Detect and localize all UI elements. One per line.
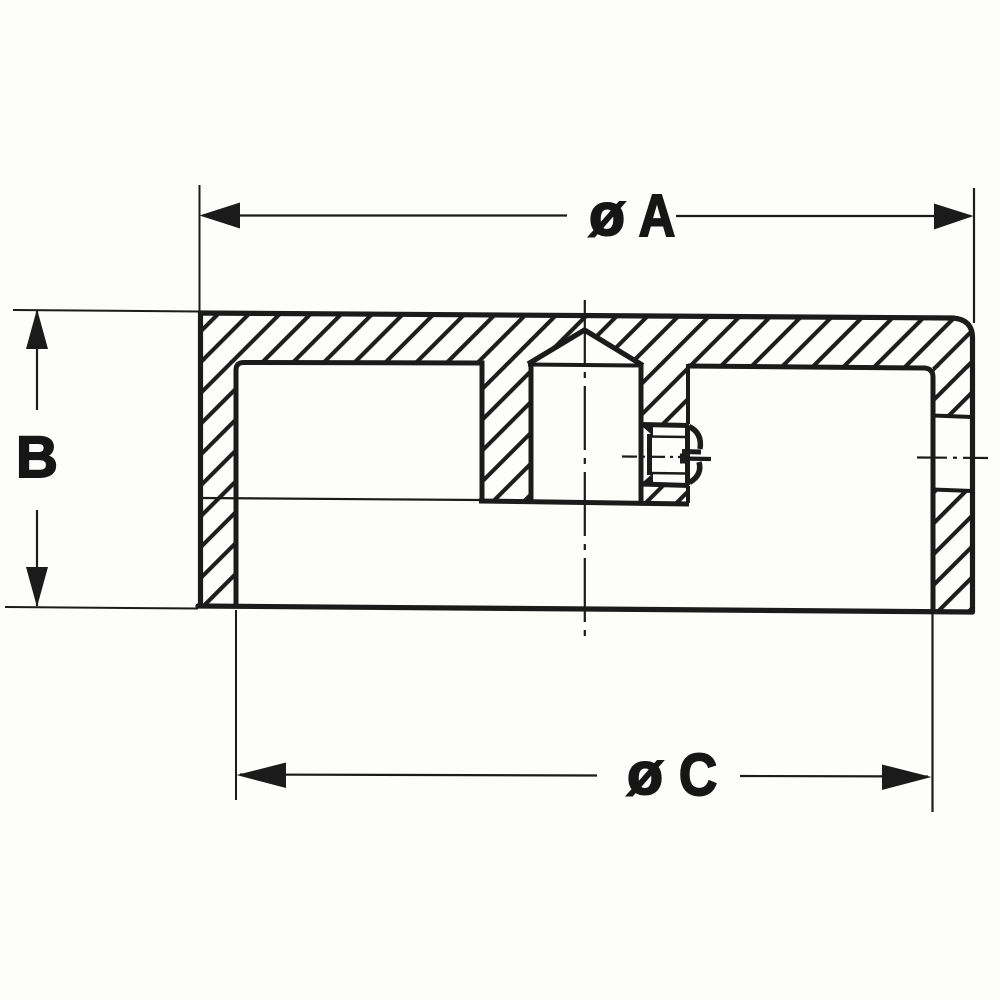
svg-text:B: B xyxy=(16,425,58,490)
svg-text:ø: ø xyxy=(589,182,625,248)
svg-text:C: C xyxy=(679,741,717,807)
svg-text:A: A xyxy=(639,182,676,248)
svg-text:ø: ø xyxy=(627,741,663,807)
